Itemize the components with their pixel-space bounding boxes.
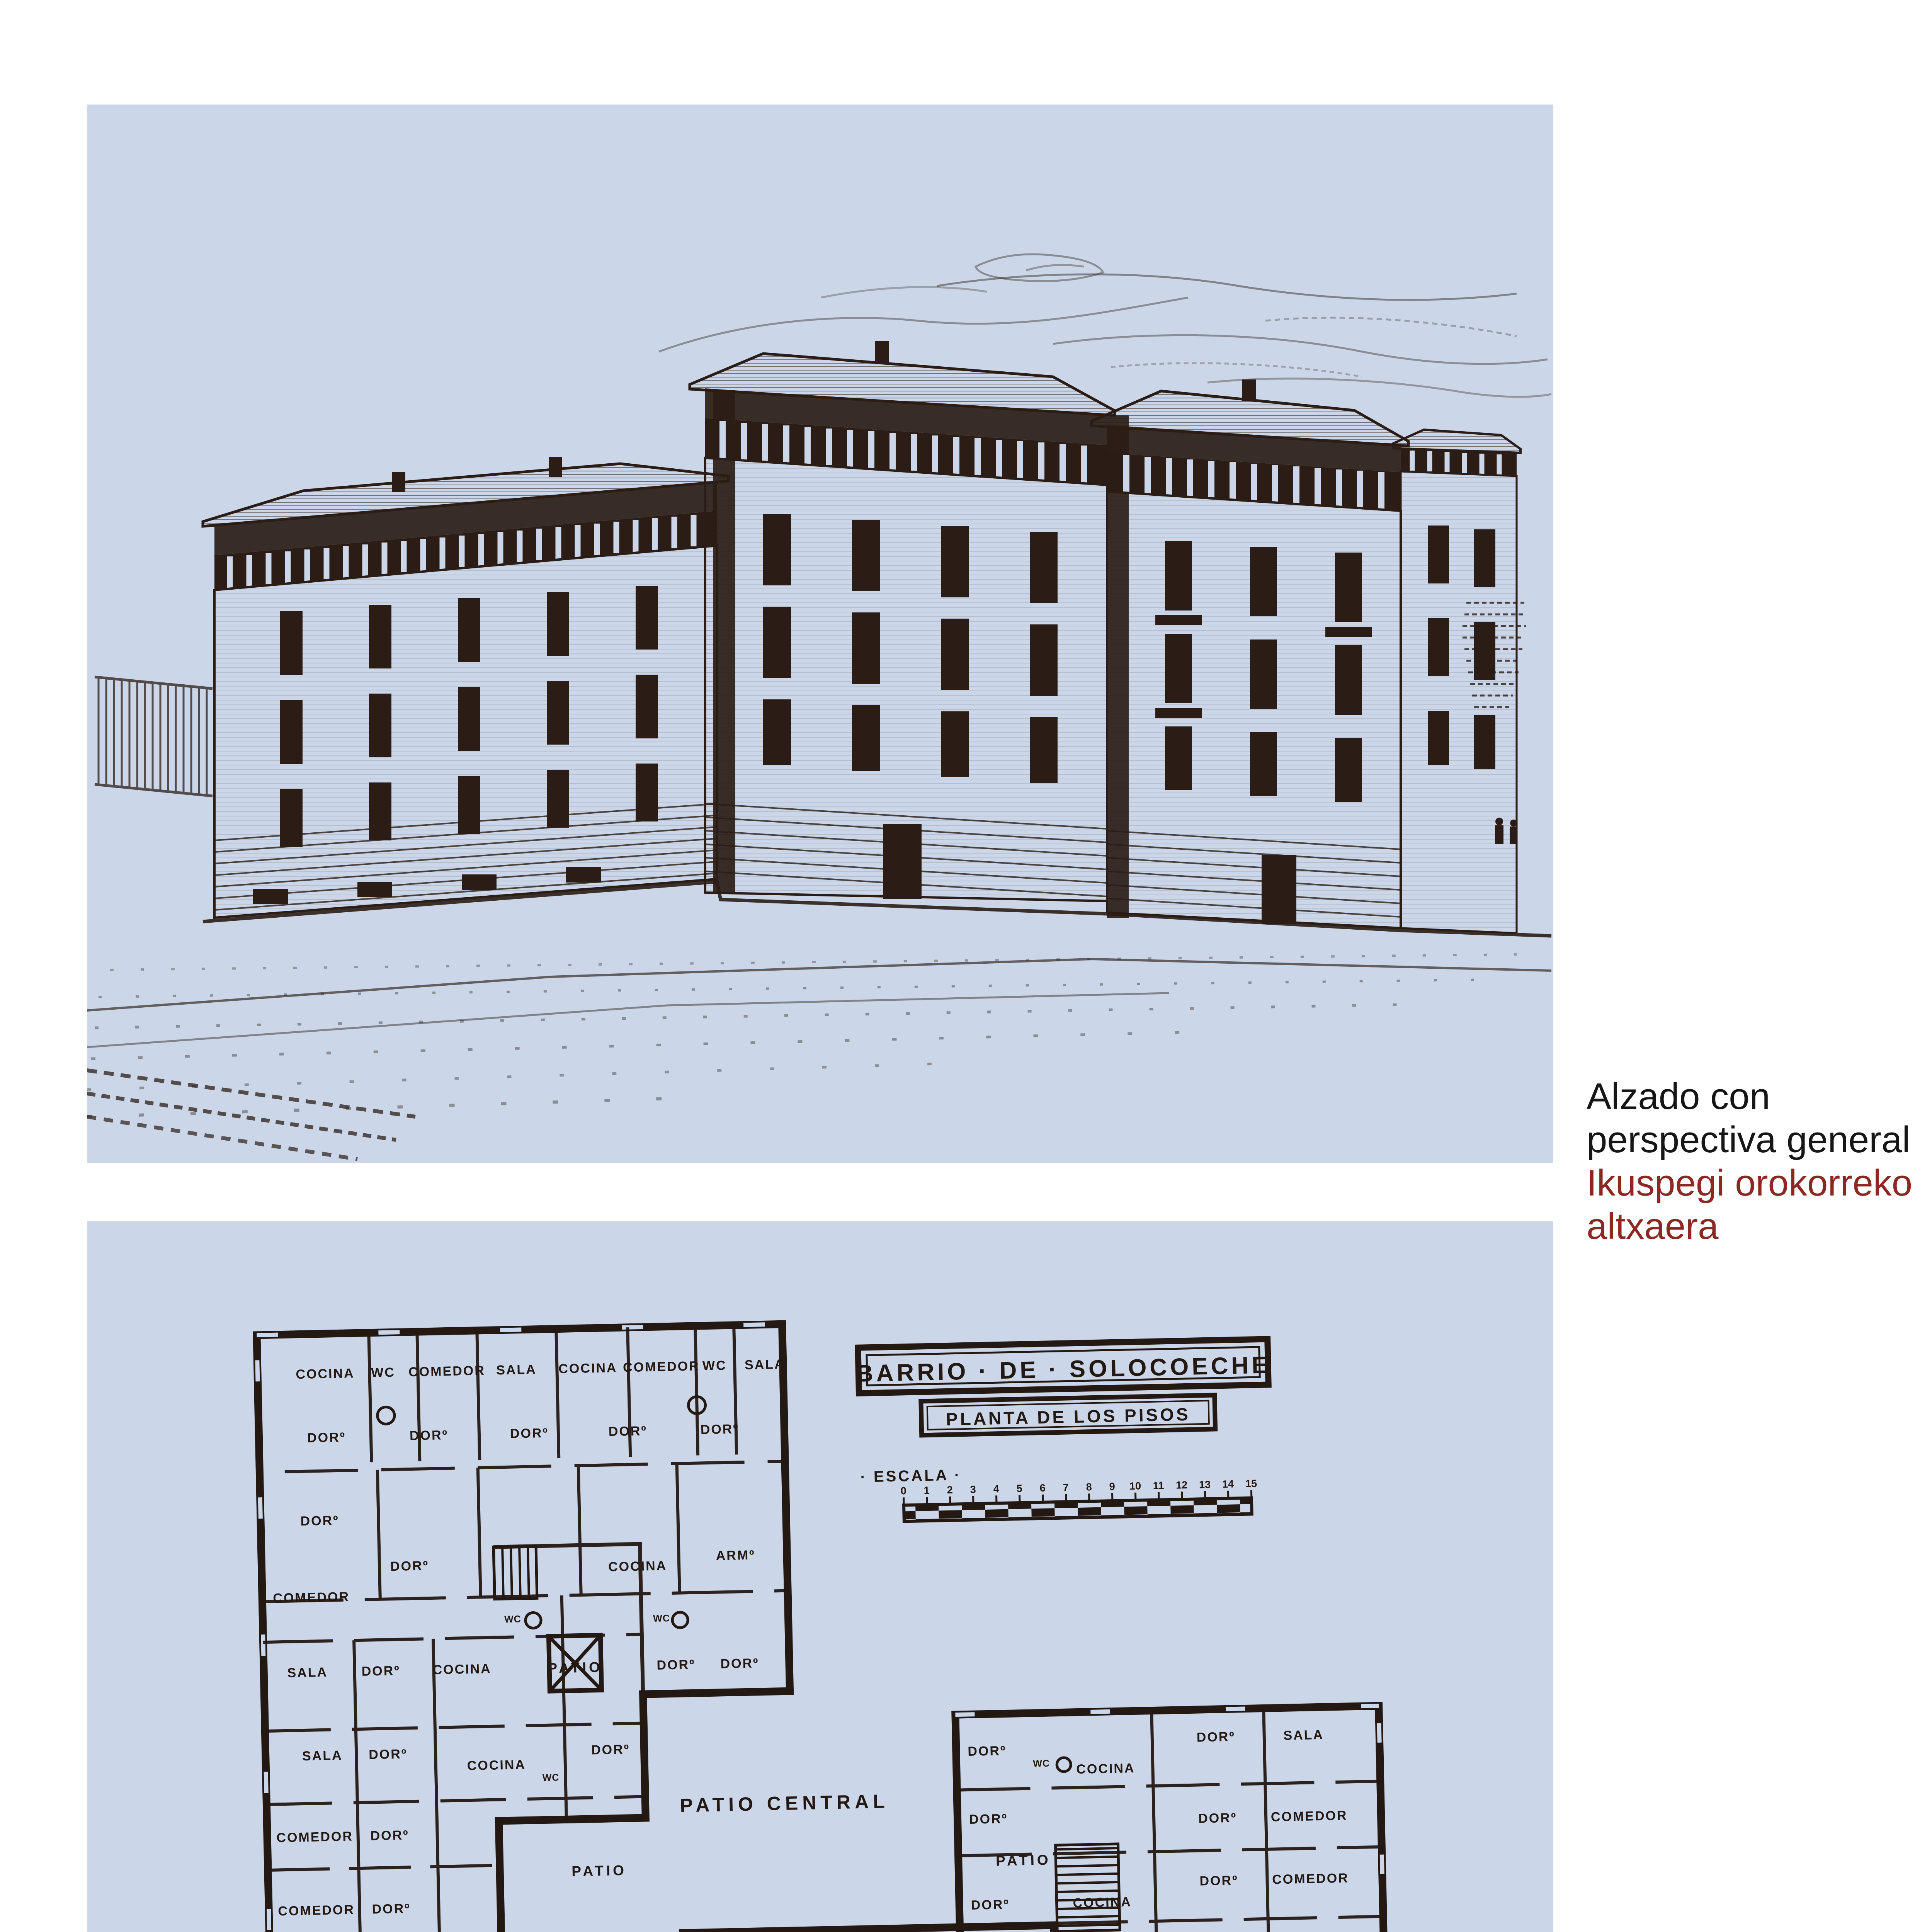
fence-sketch — [95, 677, 213, 796]
room-label: DORº — [1199, 1873, 1238, 1888]
wing-wall — [1401, 471, 1517, 933]
scale-tick-label: 2 — [947, 1484, 953, 1496]
room-label: DORº — [968, 1743, 1007, 1759]
room-label: WC — [504, 1614, 521, 1625]
scale-bar: · ESCALA · 0123456789101112131415 — [860, 1460, 1258, 1522]
room-label: DORº — [369, 1747, 408, 1762]
room-label: DORº — [361, 1663, 400, 1679]
scale-tick-label: 8 — [1086, 1481, 1092, 1493]
room-label: DORº — [720, 1656, 759, 1671]
room-label: DORº — [971, 1897, 1010, 1913]
scale-label: · ESCALA · — [860, 1466, 962, 1485]
room-label: COCINA — [1076, 1761, 1135, 1777]
room-label: SALA — [302, 1748, 343, 1764]
plan-title-line1: BARRIO · DE · SOLOCOECHE — [855, 1352, 1271, 1387]
scale-tick-label: 12 — [1176, 1479, 1188, 1491]
room-label: COCINA — [608, 1558, 667, 1574]
room-label: DORº — [591, 1742, 630, 1757]
room-label: PATIO — [548, 1659, 603, 1676]
room-label: WC — [371, 1365, 395, 1380]
scale-tick-label: 4 — [993, 1483, 999, 1495]
staircase — [493, 1546, 537, 1599]
scale-tick-label: 1 — [923, 1485, 930, 1496]
room-label: WC — [702, 1358, 727, 1373]
room-label: COMEDOR — [1270, 1808, 1347, 1824]
staircase — [1056, 1844, 1120, 1931]
plan-outer-walls — [257, 1312, 1391, 1932]
room-label: DORº — [1198, 1810, 1237, 1826]
room-label: SALA — [1283, 1728, 1324, 1743]
room-label: DORº — [300, 1513, 339, 1529]
scale-tick-label: 7 — [1063, 1481, 1069, 1493]
plan-partitions — [257, 1312, 1391, 1932]
room-label: WC — [542, 1772, 559, 1783]
scale-tick-label: 3 — [970, 1483, 976, 1495]
plan-panel: BARRIO · DE · SOLOCOECHE PLANTA DE LOS P… — [87, 1221, 1553, 1932]
scale-tick-label: 0 — [900, 1485, 906, 1497]
room-label: COCINA — [467, 1757, 526, 1773]
chimney — [549, 457, 562, 477]
room-label: PATIO — [571, 1862, 627, 1879]
room-label: COMEDOR — [1272, 1871, 1349, 1887]
scale-tick-label: 11 — [1153, 1480, 1164, 1492]
scale-tick-label: 13 — [1199, 1479, 1211, 1491]
room-label: PATIO — [996, 1852, 1051, 1869]
room-label: WC — [1033, 1758, 1050, 1769]
room-label: COMEDOR — [278, 1902, 355, 1918]
room-label: WC — [653, 1613, 670, 1624]
room-label: DORº — [410, 1428, 449, 1443]
room-label: DORº — [372, 1901, 411, 1917]
elevation-caption-basque: Ikuspegi orokorreko altxaera — [1587, 1162, 1932, 1248]
plan-title-box: BARRIO · DE · SOLOCOECHE — [855, 1339, 1271, 1393]
room-label: DORº — [390, 1558, 429, 1574]
room-label: COCINA — [1073, 1895, 1132, 1910]
middle-block — [690, 341, 1115, 901]
middle-doorway — [883, 824, 922, 899]
room-label: DORº — [608, 1423, 647, 1439]
room-label: COMEDOR — [273, 1589, 350, 1605]
chimney — [1242, 379, 1256, 401]
chimney — [392, 472, 405, 492]
wing-roof — [1393, 430, 1520, 453]
right-windows — [1155, 541, 1372, 802]
scale-bar-rule — [904, 1498, 1252, 1522]
scale-tick-label: 6 — [1039, 1482, 1046, 1494]
room-label: DORº — [307, 1430, 346, 1446]
patio-lightwells — [549, 1635, 618, 1932]
room-label: COMEDOR — [276, 1829, 353, 1845]
right-doorway — [1262, 855, 1296, 924]
room-label: COCINA — [296, 1366, 355, 1382]
room-label: COCINA — [432, 1662, 492, 1677]
room-label: DORº — [700, 1422, 739, 1437]
plan-subtitle-box: PLANTA DE LOS PISOS — [921, 1395, 1215, 1435]
scale-tick-label: 9 — [1109, 1481, 1115, 1492]
room-label: SALA — [745, 1357, 785, 1372]
scale-tick-label: 5 — [1016, 1483, 1022, 1494]
room-label: DORº — [969, 1811, 1008, 1827]
floor-plan-drawing: BARRIO · DE · SOLOCOECHE PLANTA DE LOS P… — [87, 1221, 1553, 1932]
scale-tick-label: 10 — [1129, 1480, 1141, 1492]
scale-tick-label: 15 — [1245, 1478, 1257, 1490]
room-label: COCINA — [558, 1361, 617, 1376]
far-right-wing — [1393, 430, 1520, 933]
elevation-caption-spanish: Alzado con perspectiva general — [1587, 1075, 1932, 1162]
room-label: DORº — [510, 1426, 549, 1441]
left-block — [203, 457, 728, 918]
elevation-panel — [87, 104, 1553, 1163]
chimney — [875, 341, 889, 363]
room-label: DORº — [1196, 1730, 1235, 1745]
room-label: PATIO CENTRAL — [680, 1790, 889, 1816]
elevation-caption: Alzado con perspectiva general Ikuspegi … — [1587, 1075, 1932, 1248]
room-label: ARMº — [716, 1548, 755, 1563]
right-block — [1092, 379, 1408, 928]
room-label: DORº — [656, 1657, 696, 1673]
room-label: SALA — [287, 1665, 328, 1680]
elevation-drawing — [87, 104, 1553, 1163]
room-label: COMEDOR — [623, 1359, 700, 1375]
room-label: DORº — [370, 1828, 409, 1843]
room-labels: COCINAWCCOMEDORSALACOCINACOMEDORWCSALADO… — [267, 1345, 1357, 1932]
room-label: COMEDOR — [408, 1363, 485, 1379]
plan-wall-openings — [257, 1312, 1391, 1932]
scale-tick-label: 14 — [1222, 1478, 1234, 1490]
room-label: SALA — [496, 1362, 537, 1378]
